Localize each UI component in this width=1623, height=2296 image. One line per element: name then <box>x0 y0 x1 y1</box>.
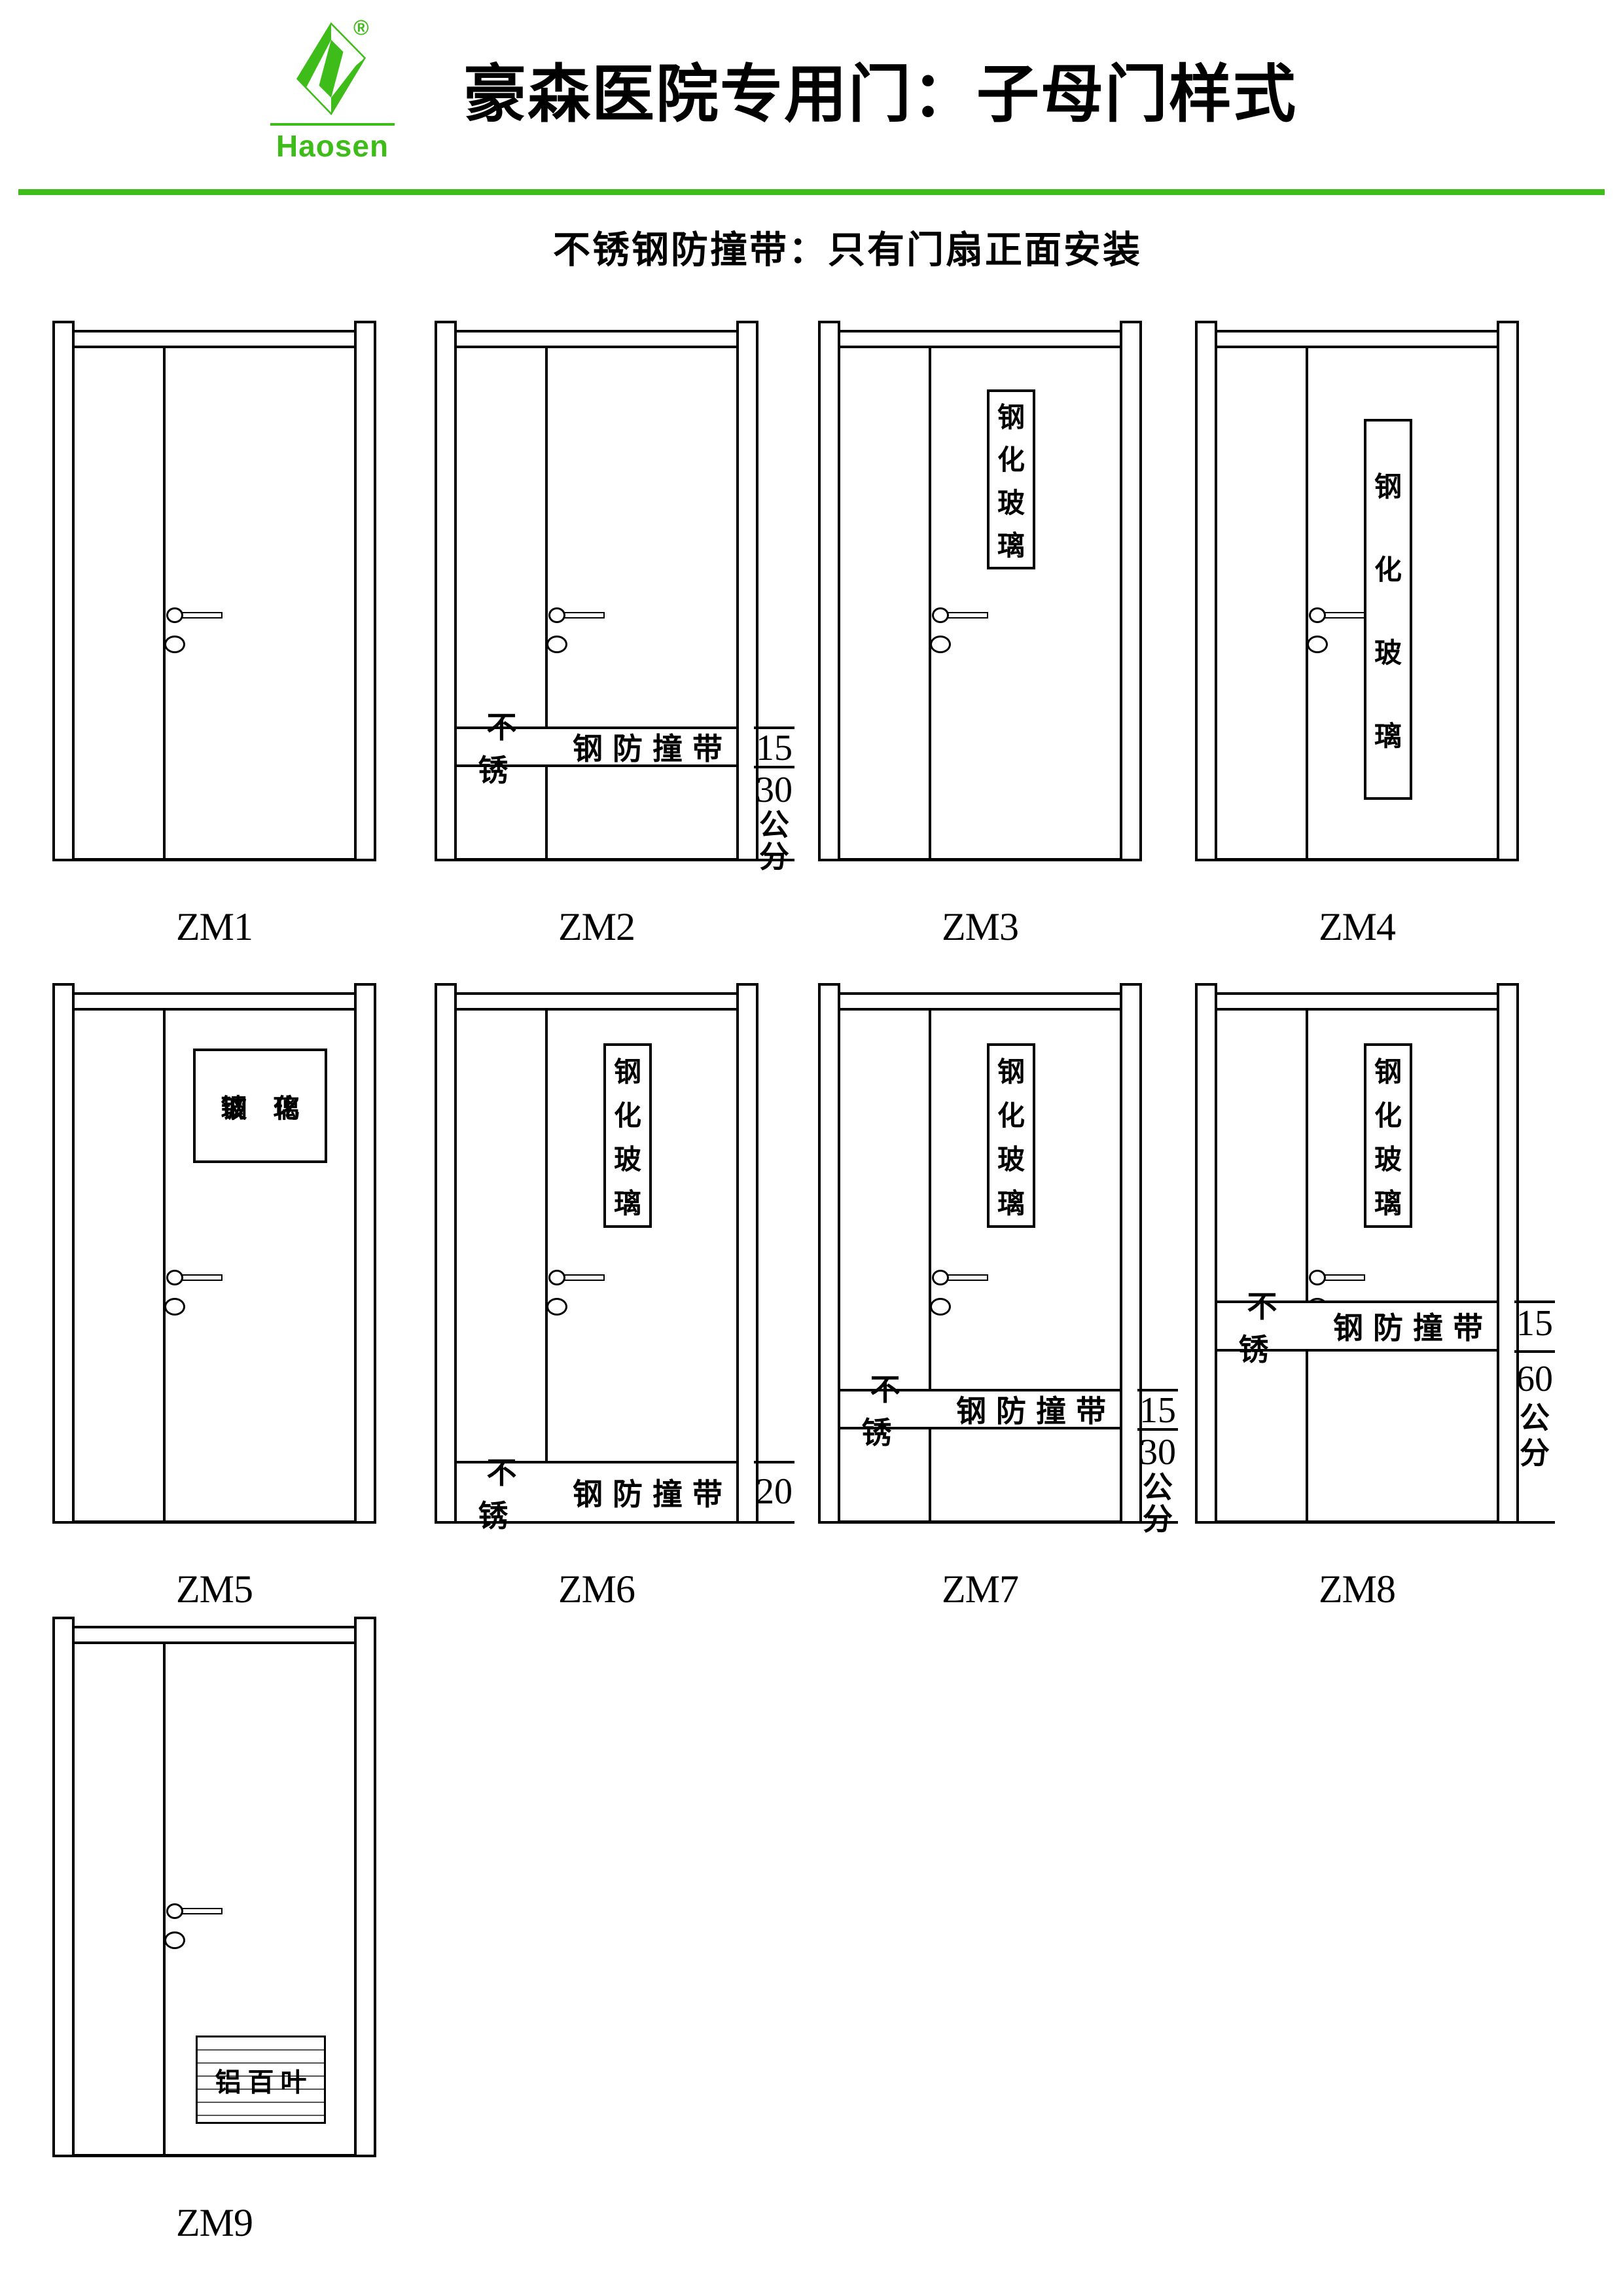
brand-name: Haosen <box>265 128 400 164</box>
door-frame-lintel <box>1215 330 1499 348</box>
door-frame-post-left <box>52 1617 75 2157</box>
dimension-value: 分 <box>1514 1437 1555 1469</box>
bumper-band-label-left: 不锈 <box>840 1366 930 1452</box>
door-frame-post-right <box>1497 321 1519 861</box>
door-handle-rose-icon <box>1309 1270 1326 1285</box>
glass-label-char: 玻 <box>1374 1138 1402 1177</box>
door-leaf-child <box>75 348 164 861</box>
dimension-value: 分 <box>1137 1504 1178 1534</box>
door-frame-post-left <box>1195 321 1217 861</box>
tempered-glass-window: 钢化玻璃 <box>987 1043 1035 1228</box>
door-lock-cylinder-icon <box>164 636 185 653</box>
bumper-band-label-left: 不锈 <box>1217 1283 1307 1369</box>
door-frame-post-left <box>52 321 75 861</box>
bumper-band-label-right: 钢防撞带 <box>930 1388 1120 1431</box>
door-leaf-child <box>1217 1011 1307 1524</box>
door-code-label: ZM6 <box>435 1567 758 1612</box>
door-leaf-child <box>75 1644 164 2157</box>
door-leaf-child <box>457 1011 546 1524</box>
tempered-glass-window: 钢化玻璃 <box>603 1043 652 1228</box>
door-diagram-zm5: 钢化玻璃ZM5 <box>52 983 376 1611</box>
door-code-label: ZM2 <box>435 905 758 950</box>
door-frame-lintel <box>1215 992 1499 1011</box>
door-handle-rose-icon <box>166 1270 183 1285</box>
door-leaf-mother <box>164 348 354 861</box>
dimension-tick <box>1514 1521 1555 1524</box>
dimension-annotation: 1560公分 <box>1514 983 1558 1526</box>
dimension-value: 公 <box>1137 1471 1178 1503</box>
glass-label-char: 钢 <box>614 1050 641 1090</box>
dimension-tick <box>754 1461 794 1463</box>
door-frame-lintel <box>72 1626 357 1644</box>
tempered-glass-window: 钢化玻璃 <box>987 389 1035 569</box>
dimension-tick <box>754 766 794 768</box>
bumper-band-label-right: 钢防撞带 <box>546 725 736 768</box>
door-diagram-zm1: ZM1 <box>52 321 376 949</box>
door-lock-cylinder-icon <box>164 1931 185 1949</box>
door-frame-lintel <box>838 992 1122 1011</box>
page-title: 豪森医院专用门：子母门样式 <box>463 43 1297 134</box>
glass-label-char: 钢 <box>997 395 1025 435</box>
door-diagram-zm9: 铝百叶ZM9 <box>52 1617 376 2245</box>
tempered-glass-window: 钢化玻璃 <box>1364 1043 1412 1228</box>
door-frame-post-left <box>52 983 75 1524</box>
door-leaf-child <box>75 1011 164 1524</box>
aluminium-louver: 铝百叶 <box>196 2036 326 2124</box>
dimension-value: 30 <box>1137 1435 1178 1470</box>
glass-label-char: 玻 <box>614 1138 641 1177</box>
header-divider-rule <box>18 189 1605 195</box>
glass-label-char: 璃 <box>997 1181 1025 1221</box>
glass-label-char: 玻 <box>997 481 1025 521</box>
door-frame-lintel <box>72 330 357 348</box>
door-handle-rose-icon <box>1309 607 1326 623</box>
stainless-bumper-band: 不锈钢防撞带 <box>457 1461 736 1524</box>
leaf-meeting-stile <box>163 1644 166 2157</box>
dimension-value: 15 <box>754 729 794 767</box>
dimension-tick <box>1137 1521 1178 1524</box>
glass-label-char: 化 <box>997 1094 1025 1134</box>
glass-label-char: 化 <box>614 1094 641 1134</box>
bumper-band-label-right: 钢防撞带 <box>1307 1304 1497 1348</box>
glass-label-char: 璃 <box>614 1181 641 1221</box>
door-lock-cylinder-icon <box>546 1298 567 1316</box>
dimension-value: 30 <box>754 772 794 808</box>
leaf-meeting-stile <box>163 1011 166 1524</box>
dimension-value: 分 <box>754 842 794 872</box>
spec-sheet-page: ® Haosen 豪森医院专用门：子母门样式 不锈钢防撞带：只有门扇正面安装 Z… <box>0 0 1623 2296</box>
bumper-band-label-right: 钢防撞带 <box>546 1471 736 1514</box>
door-frame-post-left <box>435 321 457 861</box>
bumper-band-label-left: 不锈 <box>457 1449 546 1535</box>
door-diagram-zm6: 钢化玻璃不锈钢防撞带20ZM6 <box>435 983 758 1611</box>
glass-label-char: 璃 <box>1374 714 1402 754</box>
door-handle-rose-icon <box>166 1903 183 1919</box>
door-frame-lintel <box>454 992 739 1011</box>
door-code-label: ZM3 <box>818 905 1142 950</box>
dimension-tick <box>1514 1350 1555 1353</box>
glass-label-char: 璃 <box>1374 1181 1402 1221</box>
door-code-label: ZM4 <box>1195 905 1519 950</box>
dimension-annotation: 1530公分 <box>1137 983 1181 1526</box>
door-diagram-zm8: 钢化玻璃不锈钢防撞带1560公分ZM8 <box>1195 983 1519 1611</box>
door-frame-lintel <box>838 330 1122 348</box>
glass-label-char: 璃 <box>997 524 1025 564</box>
bumper-band-label-left: 不锈 <box>457 704 546 790</box>
door-frame-post-right <box>354 1617 376 2157</box>
dimension-value: 公 <box>754 809 794 840</box>
door-handle-rose-icon <box>548 1270 565 1285</box>
leaf-meeting-stile <box>1306 348 1308 861</box>
door-frame-lintel <box>454 330 739 348</box>
door-leaf-child <box>840 348 930 861</box>
page-subtitle: 不锈钢防撞带：只有门扇正面安装 <box>553 220 1142 274</box>
dimension-value: 公 <box>1514 1402 1555 1433</box>
glass-label-char: 玻 <box>1374 631 1402 671</box>
leaf-meeting-stile <box>929 348 931 861</box>
glass-label-row: 玻璃 <box>195 1087 326 1125</box>
door-diagram-zm7: 钢化玻璃不锈钢防撞带1530公分ZM7 <box>818 983 1142 1611</box>
door-code-label: ZM1 <box>52 905 376 950</box>
glass-label-char: 化 <box>1374 548 1402 588</box>
glass-label-char: 钢 <box>1374 1050 1402 1090</box>
dimension-tick <box>1137 1428 1178 1431</box>
dimension-annotation: 20 <box>754 983 797 1526</box>
door-lock-cylinder-icon <box>930 636 951 653</box>
door-leaf-child <box>1217 348 1307 861</box>
door-frame-post-right <box>354 983 376 1524</box>
glass-label-char: 化 <box>997 438 1025 478</box>
door-diagram-zm2: 不锈钢防撞带1530公分ZM2 <box>435 321 758 949</box>
leaf-meeting-stile <box>1306 1011 1308 1524</box>
door-handle-rose-icon <box>548 607 565 623</box>
dimension-value: 60 <box>1514 1361 1555 1397</box>
tempered-glass-window: 钢化玻璃 <box>1364 419 1412 800</box>
door-frame-post-left <box>818 321 840 861</box>
glass-label-char: 玻 <box>997 1138 1025 1177</box>
door-code-label: ZM5 <box>52 1567 376 1612</box>
glass-label-char: 钢 <box>1374 465 1402 505</box>
door-frame-post-left <box>818 983 840 1524</box>
brand-underline <box>270 123 395 126</box>
stainless-bumper-band: 不锈钢防撞带 <box>840 1389 1120 1429</box>
dimension-value: 15 <box>1137 1391 1178 1429</box>
door-handle-rose-icon <box>166 607 183 623</box>
dimension-tick <box>754 859 794 861</box>
door-frame-post-left <box>435 983 457 1524</box>
door-handle-rose-icon <box>932 1270 949 1285</box>
door-code-label: ZM8 <box>1195 1567 1519 1612</box>
stainless-bumper-band: 不锈钢防撞带 <box>1217 1300 1497 1352</box>
leaf-meeting-stile <box>545 1011 548 1524</box>
door-leaf-mother <box>546 348 736 861</box>
registered-trademark-icon: ® <box>353 16 369 40</box>
dimension-value: 20 <box>754 1473 794 1511</box>
glass-label-char: 化 <box>1374 1094 1402 1134</box>
door-lock-cylinder-icon <box>164 1298 185 1316</box>
door-diagram-zm3: 钢化玻璃ZM3 <box>818 321 1142 949</box>
door-code-label: ZM9 <box>52 2200 376 2246</box>
door-handle-rose-icon <box>932 607 949 623</box>
tempered-glass-window: 钢化玻璃 <box>193 1049 327 1163</box>
door-code-label: ZM7 <box>818 1567 1142 1612</box>
door-frame-lintel <box>72 992 357 1011</box>
door-diagram-zm4: 钢化玻璃ZM4 <box>1195 321 1519 949</box>
door-lock-cylinder-icon <box>930 1298 951 1316</box>
door-lock-cylinder-icon <box>546 636 567 653</box>
glass-label-char: 钢 <box>997 1050 1025 1090</box>
stainless-bumper-band: 不锈钢防撞带 <box>457 726 736 767</box>
door-frame-post-left <box>1195 983 1217 1524</box>
door-lock-cylinder-icon <box>1307 636 1328 653</box>
dimension-tick <box>754 1521 794 1524</box>
door-frame-post-right <box>354 321 376 861</box>
leaf-meeting-stile <box>163 348 166 861</box>
dimension-value: 15 <box>1514 1304 1555 1343</box>
dimension-annotation: 1530公分 <box>754 321 797 864</box>
door-frame-post-right <box>1120 321 1142 861</box>
